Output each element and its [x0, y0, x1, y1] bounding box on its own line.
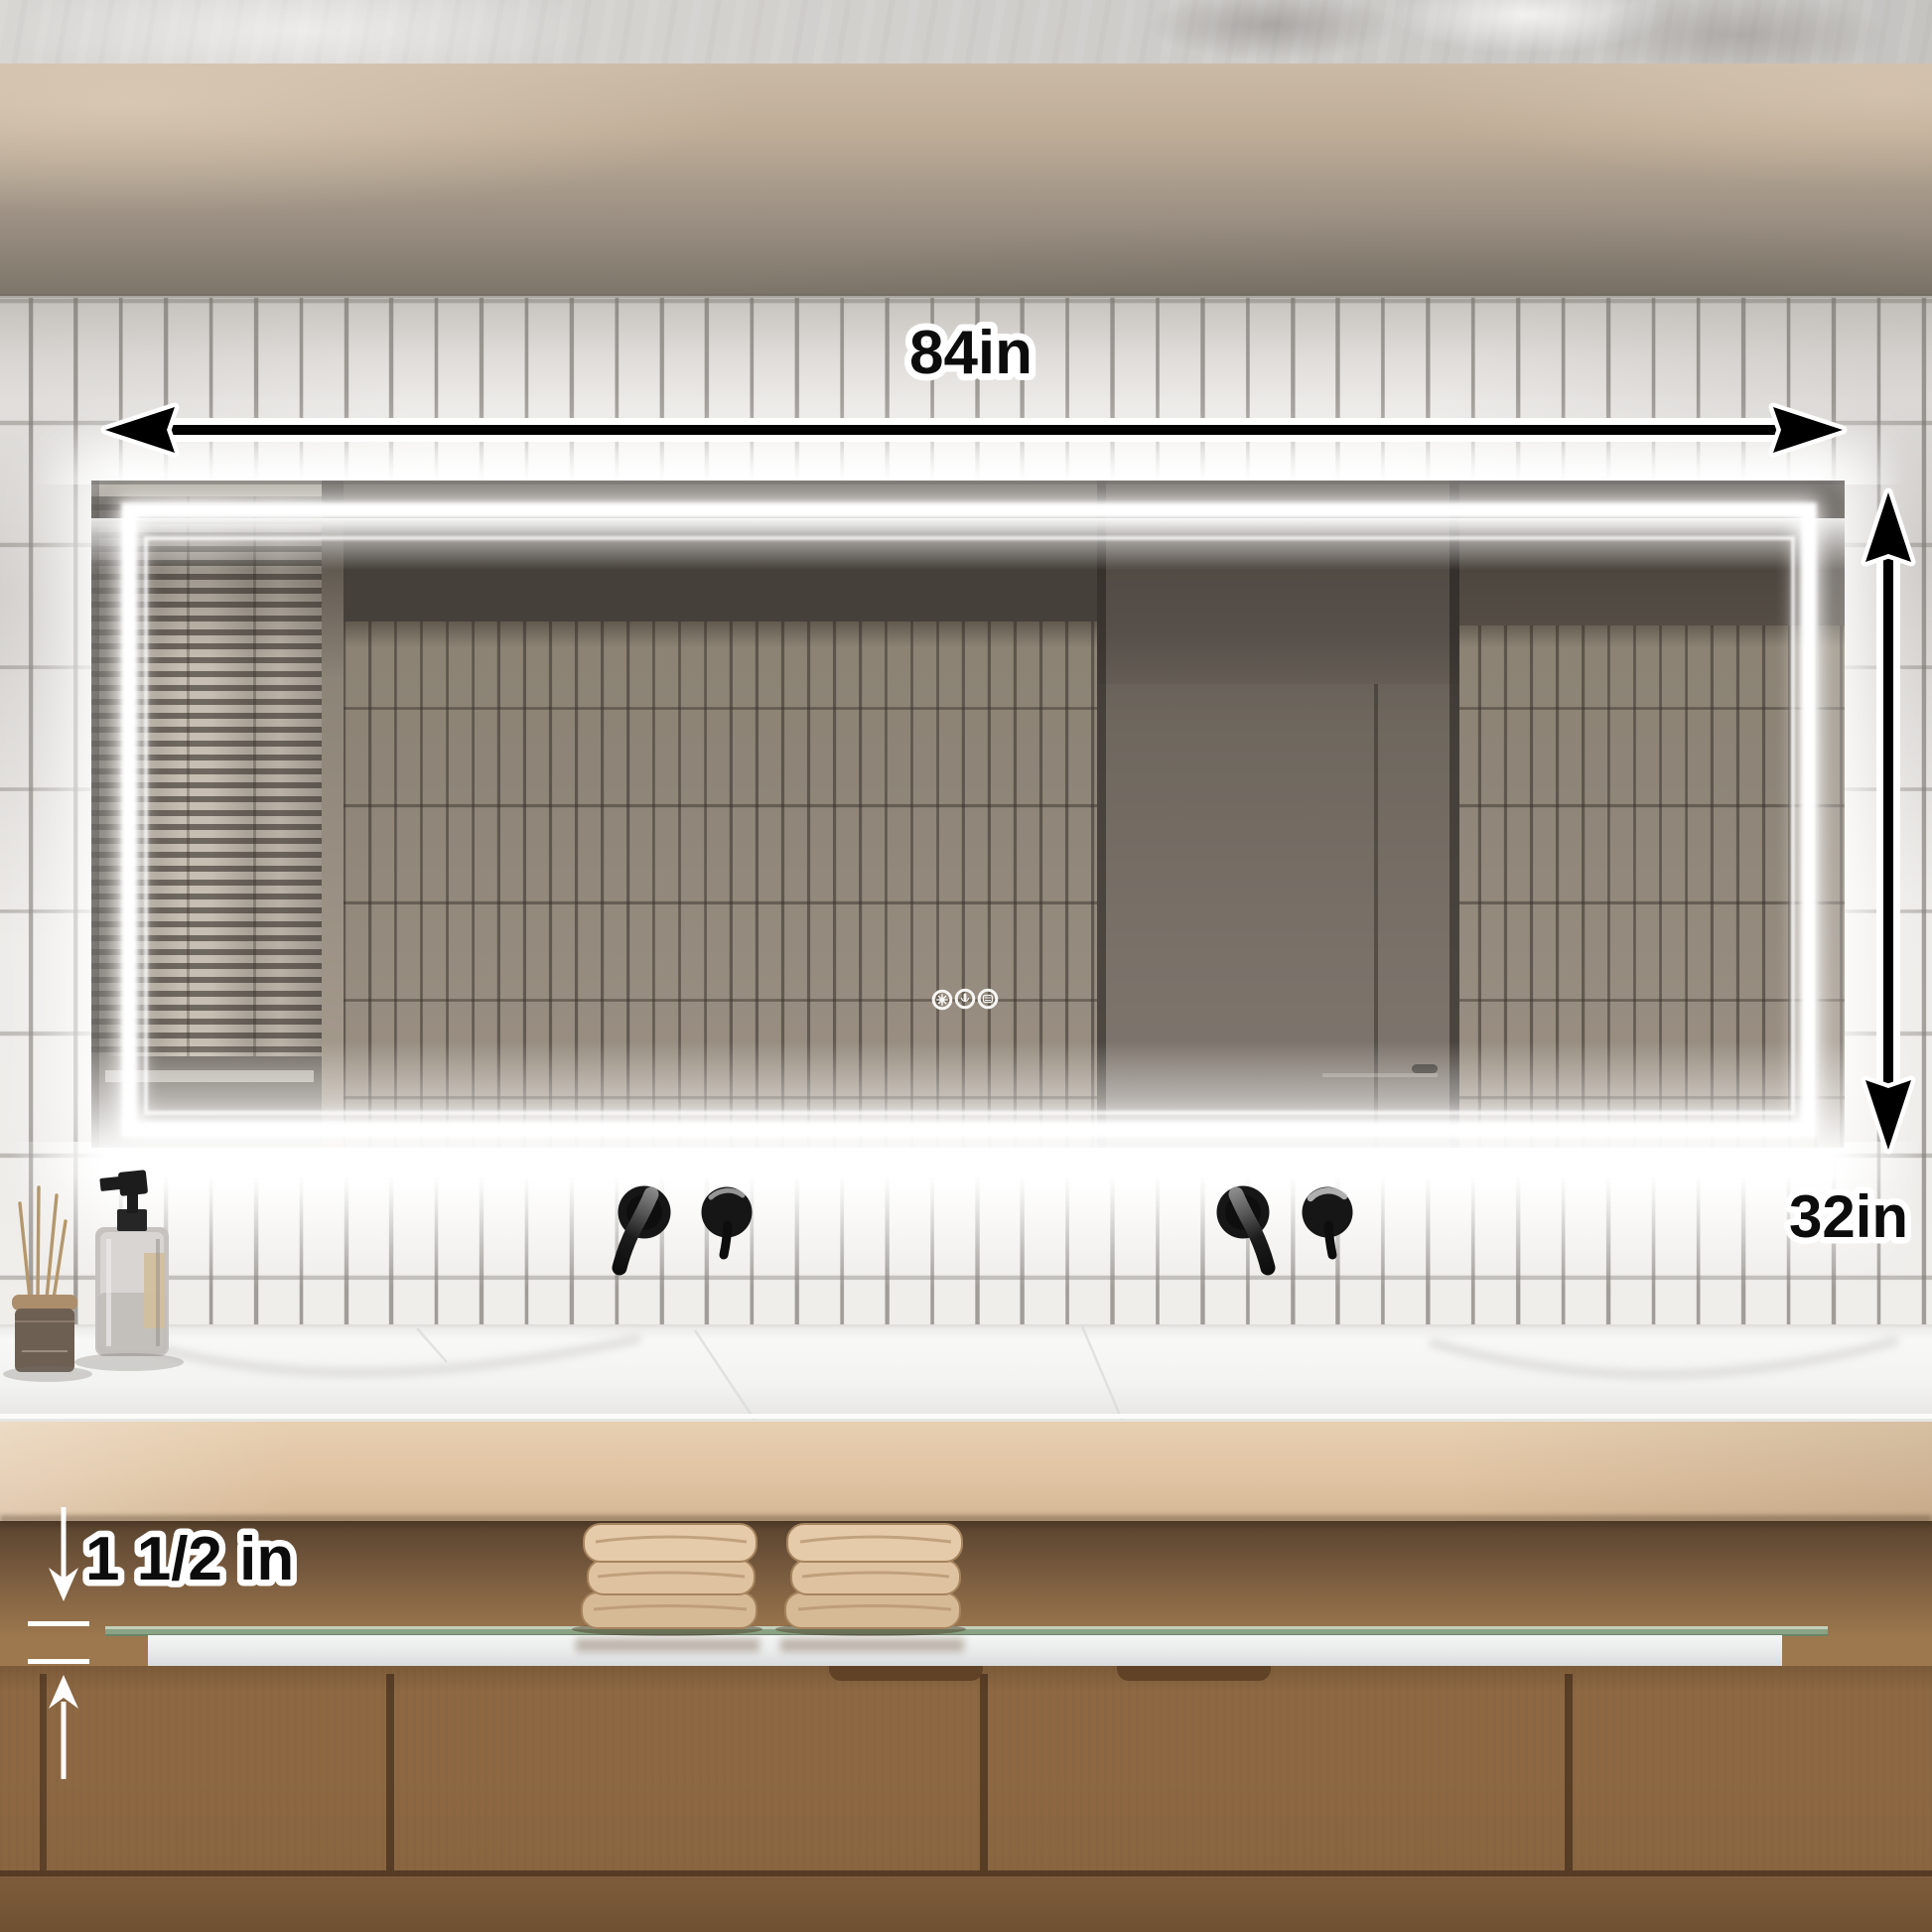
- svg-text:32in: 32in: [1789, 1183, 1908, 1250]
- svg-text:84in: 84in: [909, 319, 1033, 387]
- svg-text:1 1/2 in: 1 1/2 in: [85, 1525, 294, 1593]
